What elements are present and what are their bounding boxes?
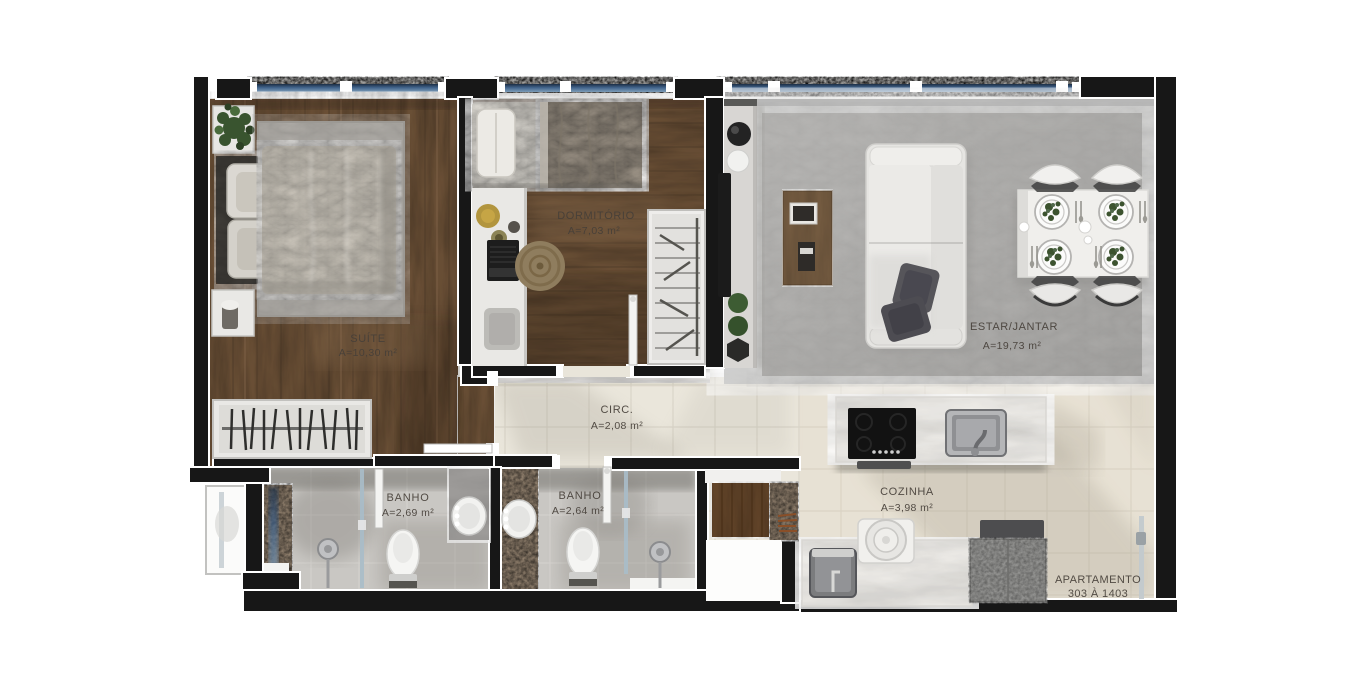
svg-text:SUÍTE: SUÍTE (350, 332, 385, 345)
svg-text:A=10,30 m²: A=10,30 m² (339, 347, 398, 359)
svg-text:A=7,03 m²: A=7,03 m² (568, 225, 620, 237)
svg-text:A=19,73 m²: A=19,73 m² (983, 340, 1042, 352)
svg-text:ESTAR/JANTAR: ESTAR/JANTAR (970, 321, 1058, 333)
svg-text:COZINHA: COZINHA (880, 486, 934, 498)
svg-text:BANHO: BANHO (386, 492, 429, 504)
svg-text:CIRC.: CIRC. (601, 404, 634, 416)
svg-text:A=2,08 m²: A=2,08 m² (591, 420, 643, 432)
svg-text:303 À 1403: 303 À 1403 (1068, 587, 1128, 600)
svg-text:APARTAMENTO: APARTAMENTO (1055, 574, 1141, 586)
svg-text:DORMITÓRIO: DORMITÓRIO (557, 209, 635, 222)
svg-text:A=3,98 m²: A=3,98 m² (881, 502, 933, 514)
svg-text:A=2,69 m²: A=2,69 m² (382, 507, 434, 519)
svg-text:BANHO: BANHO (558, 490, 601, 502)
svg-text:A=2,64 m²: A=2,64 m² (552, 505, 604, 517)
